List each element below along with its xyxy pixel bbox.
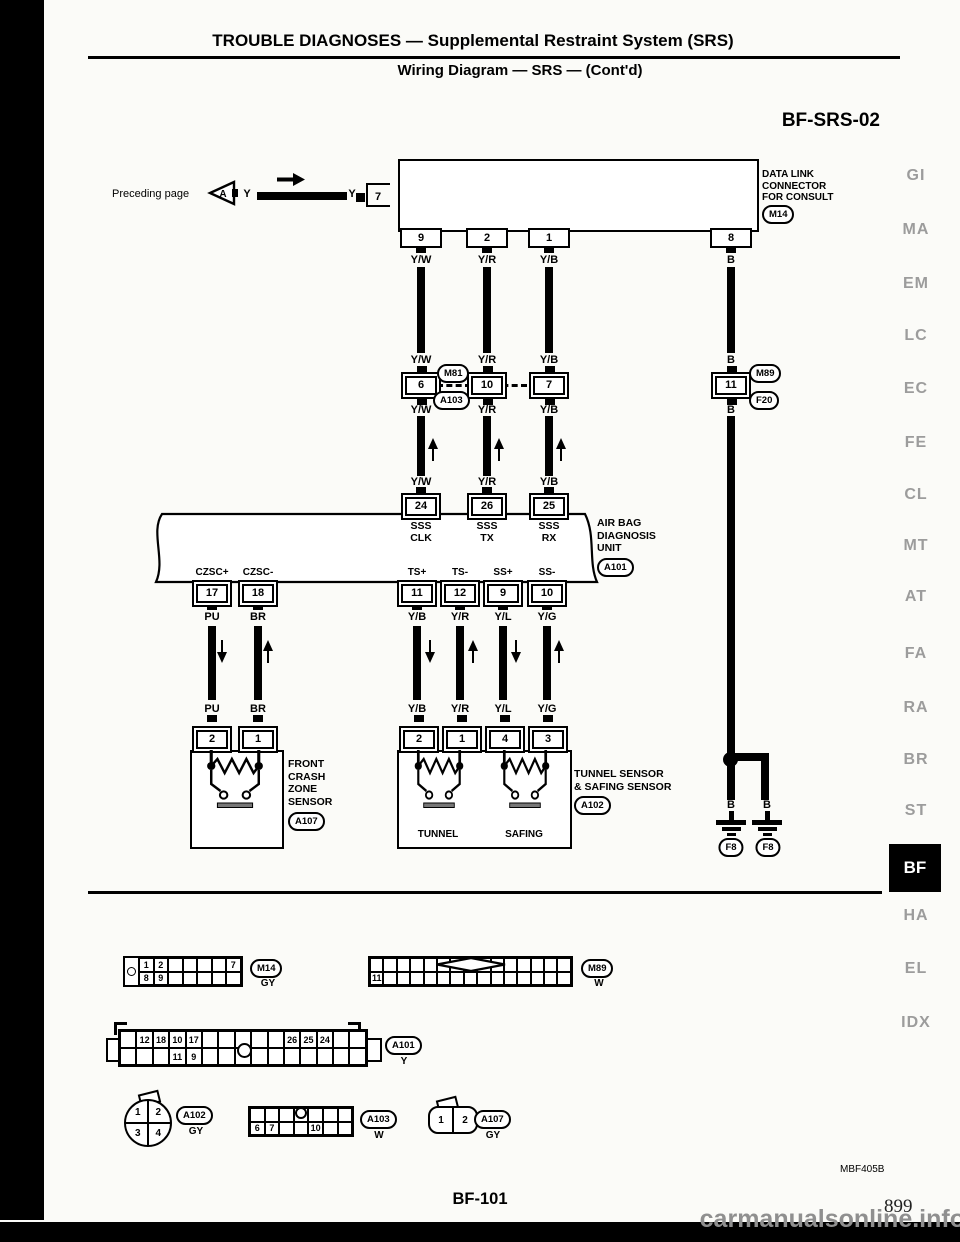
- ground-id-f8: F8: [755, 838, 780, 857]
- tab-ec: EC: [893, 380, 939, 398]
- pin-cell: [120, 1048, 136, 1065]
- ground-id-f8: F8: [718, 838, 743, 857]
- tab-ma: MA: [893, 221, 939, 239]
- wire-color-label: Y/B: [540, 354, 558, 366]
- sensor-pin: 2: [192, 726, 232, 753]
- wire-segment: [545, 267, 553, 353]
- pin-cell: [218, 1031, 234, 1048]
- unit-pin: 11: [397, 580, 437, 607]
- pin-cell: [212, 958, 227, 972]
- pin-cell: 1: [139, 958, 154, 972]
- connector-index-hole: [125, 958, 139, 985]
- pin-cell: [268, 1031, 284, 1048]
- unit-pin: 18: [238, 580, 278, 607]
- pin-cell: [268, 1048, 284, 1065]
- connector-id-m14: M14: [250, 959, 282, 978]
- wire-color-label: Y/R: [478, 254, 496, 266]
- pin-number: 2: [155, 1107, 161, 1118]
- pin-cell: [333, 1031, 349, 1048]
- page-reference: BF-101: [430, 1190, 530, 1209]
- wire-segment: [543, 626, 551, 700]
- wire-color-label: Y/W: [411, 404, 432, 416]
- pin-cell: 9: [154, 972, 169, 986]
- unit-pin: 10: [527, 580, 567, 607]
- pin-cell: [557, 958, 570, 972]
- wire-segment: [727, 267, 735, 353]
- connector-color-label: GY: [189, 1126, 203, 1137]
- pin-box: 8: [710, 228, 752, 248]
- wire-color-label: Y/G: [538, 611, 557, 623]
- unit-pin: 26: [467, 493, 507, 520]
- wire-stub: [207, 715, 217, 722]
- pin-cell: [349, 1048, 365, 1065]
- pin-number: 4: [155, 1128, 161, 1139]
- connector-id-a103: A103: [433, 391, 470, 410]
- wire-stub: [457, 715, 467, 722]
- pin-cell: [383, 958, 396, 972]
- wire-color-label: Y/R: [451, 611, 469, 623]
- pin-cell: [197, 958, 212, 972]
- wire-color-label: BR: [250, 611, 266, 623]
- splice-connector: 7: [529, 372, 569, 399]
- unit-signal-label: SSS RX: [538, 520, 559, 544]
- signal-direction-up-icon: [553, 640, 565, 663]
- sensor-pin-number: 2: [196, 730, 228, 749]
- wire-stub: [253, 715, 263, 722]
- pin-cell: [153, 1048, 169, 1065]
- pinout-grid: 12789: [139, 958, 241, 985]
- pin-cell: [308, 1108, 323, 1122]
- wire-segment: [761, 753, 769, 800]
- wire-color-label: Y/B: [540, 404, 558, 416]
- splice-connector: 10: [467, 372, 507, 399]
- pin-cell: [333, 1048, 349, 1065]
- tab-em: EM: [893, 275, 939, 293]
- pin-cell: [294, 1122, 309, 1136]
- pin-cell: [424, 958, 437, 972]
- tab-mt: MT: [893, 537, 939, 555]
- unit-pin-number: 26: [471, 497, 503, 516]
- wire-color-label: B: [763, 799, 771, 811]
- pin-cell: 7: [265, 1122, 280, 1136]
- tab-ra: RA: [893, 699, 939, 717]
- sensor-element: [412, 750, 466, 812]
- pin-cell: 25: [300, 1031, 316, 1048]
- preceding-page-ref-icon: A: [206, 180, 238, 206]
- wire-color-label: B: [727, 404, 735, 416]
- wire-color-label: B: [727, 799, 735, 811]
- pin-cell: [464, 972, 477, 986]
- connector-id-a101: A101: [385, 1036, 422, 1055]
- pin-cell: [218, 1048, 234, 1065]
- data-link-connector-box: [398, 159, 759, 232]
- front-sensor-label: FRONT CRASH ZONE SENSOR: [288, 758, 332, 808]
- wire-color-label: Y/W: [411, 254, 432, 266]
- signal-direction-up-icon: [262, 640, 274, 663]
- signal-direction-up-icon: [493, 438, 505, 461]
- pin-number: 1: [135, 1107, 141, 1118]
- pin-cell: 11: [169, 1048, 185, 1065]
- pin-cell: [168, 972, 183, 986]
- wire-segment: [413, 626, 421, 700]
- signal-direction-down-icon: [510, 640, 522, 663]
- unit-pin-number: 9: [487, 584, 519, 603]
- pin-cell: [544, 958, 557, 972]
- unit-pin: 17: [192, 580, 232, 607]
- pin-cell: [279, 1122, 294, 1136]
- signal-direction-up-icon: [427, 438, 439, 461]
- splice-pin-number: 6: [405, 376, 437, 395]
- unit-signal-label: SSS CLK: [410, 520, 432, 544]
- pin-cell: [517, 972, 530, 986]
- tab-el: EL: [893, 960, 939, 978]
- pin-cell: [284, 1048, 300, 1065]
- pin-cell: [370, 958, 383, 972]
- sensor-pin-number: 3: [532, 730, 564, 749]
- connector-id-a107: A107: [474, 1110, 511, 1129]
- unit-signal-label: SS+: [493, 567, 512, 578]
- signal-direction-down-icon: [216, 640, 228, 663]
- wire-segment: [257, 192, 347, 200]
- wire-stub: [414, 715, 424, 722]
- pin-cell: [251, 1031, 267, 1048]
- wire-stub: [500, 715, 510, 722]
- wire-segment: [417, 267, 425, 353]
- pin-cell: [437, 972, 450, 986]
- pin-cell: 7: [226, 958, 241, 972]
- pin-cell: 24: [317, 1031, 333, 1048]
- pin-cell: [226, 972, 241, 986]
- connector-id-m89: M89: [749, 364, 781, 383]
- sensor-pin: 3: [528, 726, 568, 753]
- unit-signal-label: CZSC-: [243, 567, 274, 578]
- tunnel-sensor-label: TUNNEL SENSOR & SAFING SENSOR: [574, 768, 671, 793]
- page-subtitle: Wiring Diagram — SRS — (Cont'd): [320, 62, 720, 79]
- signal-direction-up-icon: [467, 640, 479, 663]
- wire-segment: [483, 416, 491, 476]
- pin-cell: 10: [308, 1122, 323, 1136]
- connector-id-a107: A107: [288, 812, 325, 831]
- pin-cell: [477, 972, 490, 986]
- pin-cell: [450, 972, 463, 986]
- pin-cell: [557, 972, 570, 986]
- pin-cell: [120, 1031, 136, 1048]
- pin-cell: [251, 1048, 267, 1065]
- sensor-pin-number: 2: [403, 730, 435, 749]
- sensor-pin: 2: [399, 726, 439, 753]
- pin-cell: [317, 1048, 333, 1065]
- sensor-pin-number: 4: [489, 730, 521, 749]
- page-title: TROUBLE DIAGNOSES — Supplemental Restrai…: [88, 31, 858, 51]
- pin-cell: [397, 958, 410, 972]
- pin-cell: [202, 1031, 218, 1048]
- pin-cell: [383, 972, 396, 986]
- pin-cell: [136, 1048, 152, 1065]
- ground-icon: [752, 811, 782, 836]
- pin-cell: [250, 1108, 265, 1122]
- connector-id-a102: A102: [176, 1106, 213, 1125]
- pin-cell: [168, 958, 183, 972]
- wire-stub: [356, 193, 365, 202]
- sensor-pin: 1: [238, 726, 278, 753]
- sensor-element: [204, 750, 266, 812]
- pinout-m14: 12789: [123, 956, 243, 987]
- connector-id-a101: A101: [597, 558, 634, 577]
- pin-cell: [338, 1122, 353, 1136]
- unit-pin: 24: [401, 493, 441, 520]
- unit-signal-label: TS+: [408, 567, 427, 578]
- section-divider: [88, 891, 882, 894]
- pin-cell: 26: [284, 1031, 300, 1048]
- pinout-a107: 1 2: [428, 1106, 478, 1134]
- manual-page: TROUBLE DIAGNOSES — Supplemental Restrai…: [0, 0, 960, 1242]
- connector-id-m81: M81: [437, 364, 469, 383]
- pin-cell: [183, 958, 198, 972]
- pin-cell: 17: [186, 1031, 202, 1048]
- unit-pin: 12: [440, 580, 480, 607]
- wire-color-label: B: [727, 254, 735, 266]
- tab-lc: LC: [893, 327, 939, 345]
- pin-number: 2: [454, 1108, 476, 1132]
- pin-box: 9: [400, 228, 442, 248]
- connector-pin-bracket: 7: [366, 183, 390, 207]
- pin-cell: 12: [136, 1031, 152, 1048]
- splice-pin-number: 7: [533, 376, 565, 395]
- connector-color-label: GY: [261, 978, 275, 989]
- wire-segment: [456, 626, 464, 700]
- signal-direction-up-icon: [555, 438, 567, 461]
- pin-cell: [323, 1108, 338, 1122]
- wire-color-label: Y/L: [494, 703, 511, 715]
- unit-name-label: AIR BAG DIAGNOSIS UNIT: [597, 517, 656, 555]
- unit-pin: 9: [483, 580, 523, 607]
- pin-cell: [531, 958, 544, 972]
- connector-keyway-diamond: [436, 957, 506, 972]
- connector-color-label: W: [594, 978, 603, 989]
- pin-cell: [410, 958, 423, 972]
- splice-pin-number: 11: [715, 376, 747, 395]
- sensor-pin: 1: [442, 726, 482, 753]
- tab-gi: GI: [893, 167, 939, 185]
- pin-box: 2: [466, 228, 508, 248]
- wire-segment: [417, 416, 425, 476]
- divider: [126, 1122, 170, 1124]
- unit-signal-label: CZSC+: [195, 567, 228, 578]
- tab-cl: CL: [893, 486, 939, 504]
- unit-pin-number: 24: [405, 497, 437, 516]
- left-edge-bar: [0, 0, 44, 1220]
- connector-id-a102: A102: [574, 796, 611, 815]
- pin-cell: [265, 1108, 280, 1122]
- unit-pin-number: 18: [242, 584, 274, 603]
- tab-br: BR: [893, 751, 939, 769]
- pin-cell: [323, 1122, 338, 1136]
- pin-cell: [424, 972, 437, 986]
- wire-color-label: Y/L: [494, 611, 511, 623]
- connector-id-m14: M14: [762, 205, 794, 224]
- wire-color-label: Y/R: [451, 703, 469, 715]
- pin-cell: 18: [153, 1031, 169, 1048]
- unit-pin-number: 25: [533, 497, 565, 516]
- pin-cell: [517, 958, 530, 972]
- pin-cell: [397, 972, 410, 986]
- unit-signal-label: SSS TX: [476, 520, 497, 544]
- pin-cell: [349, 1031, 365, 1048]
- pin-cell: 6: [250, 1122, 265, 1136]
- unit-pin-number: 17: [196, 584, 228, 603]
- connector-color-label: Y: [401, 1056, 408, 1067]
- wire-segment: [254, 626, 262, 700]
- pin-cell: [197, 972, 212, 986]
- pin-cell: 2: [154, 958, 169, 972]
- pin-box: 1: [528, 228, 570, 248]
- sensor-element: [498, 750, 552, 812]
- tab-st: ST: [893, 802, 939, 820]
- flow-arrow-icon: [277, 173, 307, 186]
- connector-id-a103: A103: [360, 1110, 397, 1129]
- wire-color-label: Y/B: [408, 703, 426, 715]
- splice-pin-number: 10: [471, 376, 503, 395]
- pin-cell: [491, 972, 504, 986]
- wire-color-label: B: [727, 354, 735, 366]
- pin-cell: [410, 972, 423, 986]
- tab-bf-active: BF: [889, 844, 941, 892]
- unit-pin-number: 12: [444, 584, 476, 603]
- unit-signal-label: TS-: [452, 567, 468, 578]
- pin-cell: [338, 1108, 353, 1122]
- splice-connector: 11: [711, 372, 751, 399]
- connector-index-hole: [237, 1043, 252, 1058]
- wire-color-label: Y/G: [538, 703, 557, 715]
- pin-cell: [531, 972, 544, 986]
- pin-cell: [544, 972, 557, 986]
- pin-cell: 8: [139, 972, 154, 986]
- connector-id-m89: M89: [581, 959, 613, 978]
- safing-sub-label: SAFING: [505, 829, 543, 840]
- wire-color-label: PU: [204, 703, 219, 715]
- signal-direction-down-icon: [424, 640, 436, 663]
- pin-number: 1: [430, 1108, 454, 1132]
- data-link-connector-label: DATA LINK CONNECTOR FOR CONSULT: [762, 169, 833, 204]
- tab-ha: HA: [893, 907, 939, 925]
- pin-cell: 11: [370, 972, 383, 986]
- wire-color-label: Y/W: [411, 354, 432, 366]
- unit-pin-number: 11: [401, 584, 433, 603]
- pin-cell: 10: [169, 1031, 185, 1048]
- wire-segment: [727, 416, 735, 800]
- unit-signal-label: SS-: [539, 567, 556, 578]
- wire-segment: [483, 267, 491, 353]
- wire-segment: [208, 626, 216, 700]
- connector-index-hole: [295, 1107, 307, 1119]
- tab-at: AT: [893, 588, 939, 606]
- pin-cell: [183, 972, 198, 986]
- sensor-pin-number: 1: [446, 730, 478, 749]
- tab-idx: IDX: [893, 1014, 939, 1032]
- unit-pin: 25: [529, 493, 569, 520]
- wire-color-label: Y/R: [478, 404, 496, 416]
- pin-cell: [279, 1108, 294, 1122]
- wire-segment: [545, 416, 553, 476]
- diagram-code: BF-SRS-02: [740, 110, 880, 132]
- wire-segment: [499, 626, 507, 700]
- tab-fe: FE: [893, 434, 939, 452]
- connector-color-label: GY: [486, 1130, 500, 1141]
- wire-color-label: BR: [250, 703, 266, 715]
- wire-stub: [543, 715, 553, 722]
- tunnel-sub-label: TUNNEL: [418, 829, 459, 840]
- pin-cell: [212, 972, 227, 986]
- pin-cell: 9: [186, 1048, 202, 1065]
- wire-color-label: Y: [243, 188, 250, 200]
- pin-cell: [202, 1048, 218, 1065]
- figure-code: MBF405B: [840, 1164, 884, 1175]
- wire-color-label: Y/B: [540, 254, 558, 266]
- sensor-pin: 4: [485, 726, 525, 753]
- ground-icon: [716, 811, 746, 836]
- unit-pin-number: 10: [531, 584, 563, 603]
- connector-id-f20: F20: [749, 391, 779, 410]
- watermark: carmanualsonline.info: [620, 1205, 960, 1234]
- connector-side-tab: [366, 1038, 382, 1062]
- tab-fa: FA: [893, 645, 939, 663]
- pinout-a102: 1 2 3 4: [124, 1099, 172, 1147]
- pin-number: 3: [135, 1128, 141, 1139]
- wire-color-label: Y: [348, 188, 355, 200]
- sensor-pin-number: 1: [242, 730, 274, 749]
- pin-cell: [504, 972, 517, 986]
- connector-color-label: W: [374, 1130, 383, 1141]
- pin-cell: [300, 1048, 316, 1065]
- wire-color-label: PU: [204, 611, 219, 623]
- wire-color-label: Y/B: [408, 611, 426, 623]
- preceding-page-label: Preceding page: [112, 188, 189, 200]
- ref-letter: A: [219, 189, 226, 200]
- wire-color-label: Y/R: [478, 354, 496, 366]
- title-underline: [88, 56, 900, 59]
